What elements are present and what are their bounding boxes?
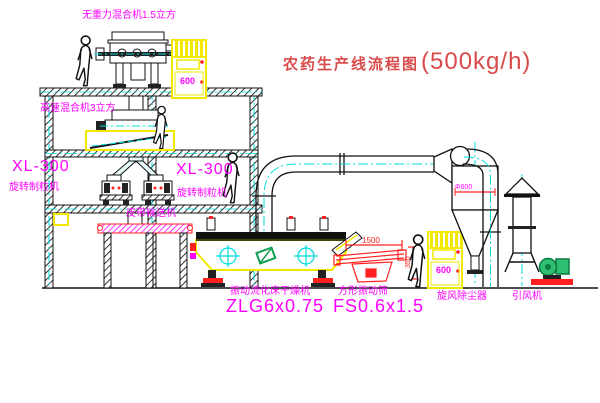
control-cabinet-2 [428,232,462,288]
label-fan: 引风机 [512,292,542,302]
title-capacity: (500kg/h) [421,48,531,76]
label-sieve-model: FS0.6x1.5 [333,297,424,315]
granulator-left [100,175,132,205]
fluid-bed-dryer [190,216,362,287]
person-icon [76,36,92,86]
label-granulator-right-model: XL-300 [176,162,234,178]
label-high-speed-mixer: 高速混合机3立方 [40,104,116,114]
label-gravity-mixer: 无重力混合机1.5立方 [82,11,176,21]
duct-elbow [252,149,452,244]
label-belt-conveyor: 皮带输送机 [126,209,176,219]
control-cabinet-1 [172,40,206,98]
exhaust-stack [504,174,540,286]
sieve-dim-width: 1500 [362,236,380,245]
label-dryer-model: ZLG6x0.75 [226,297,324,315]
label-granulator-left-model: XL-300 [12,159,70,175]
label-granulator-right-name: 旋转制粒机 [177,189,227,199]
diagram-title: 农药生产线流程图 (500kg/h) [283,48,531,76]
gravity-free-mixer [94,32,184,112]
granulator-right [142,175,174,205]
label-cyclone: 旋风除尘器 [437,292,487,302]
flow-diagram-canvas: 600 [0,0,600,403]
cabinet2-display: 600 [436,265,451,275]
label-granulator-left-name: 旋转制粒机 [9,183,59,193]
cyclone-dim: Φ600 [455,184,472,191]
title-text: 农药生产线流程图 [283,53,419,74]
cabinet1-display: 600 [180,76,195,86]
belt-conveyor [54,213,193,288]
induced-draft-fan [531,259,573,286]
